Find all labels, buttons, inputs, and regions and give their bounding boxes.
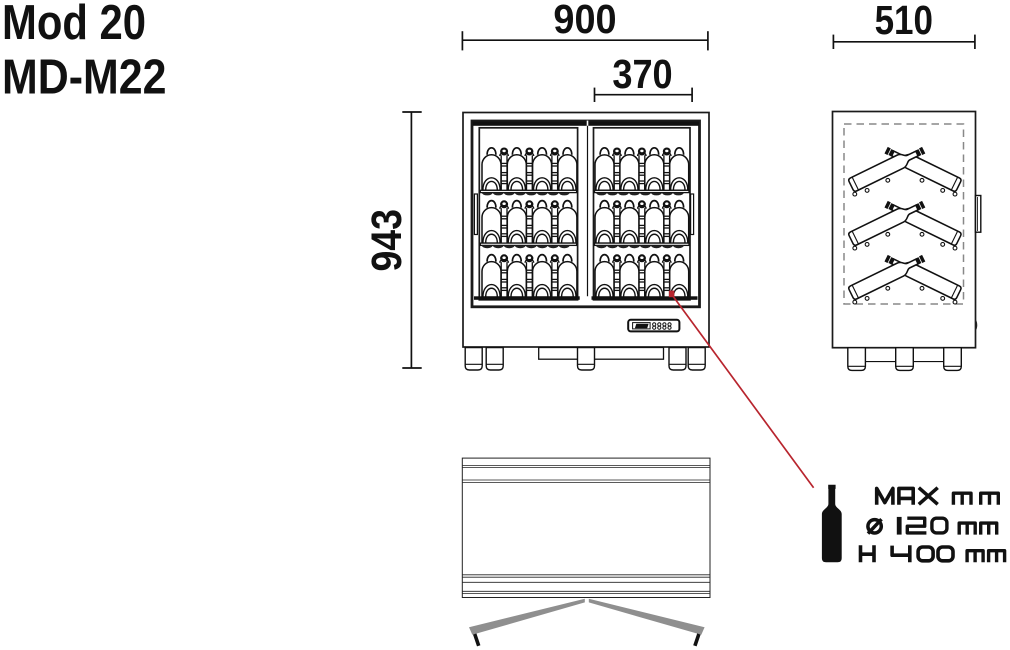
- svg-text:510: 510: [875, 0, 933, 43]
- svg-text:Mod 20: Mod 20: [2, 0, 146, 50]
- svg-text:900: 900: [553, 0, 616, 42]
- svg-text:943: 943: [364, 209, 411, 271]
- svg-text:370: 370: [612, 51, 672, 97]
- svg-text:MD-M22: MD-M22: [2, 50, 167, 104]
